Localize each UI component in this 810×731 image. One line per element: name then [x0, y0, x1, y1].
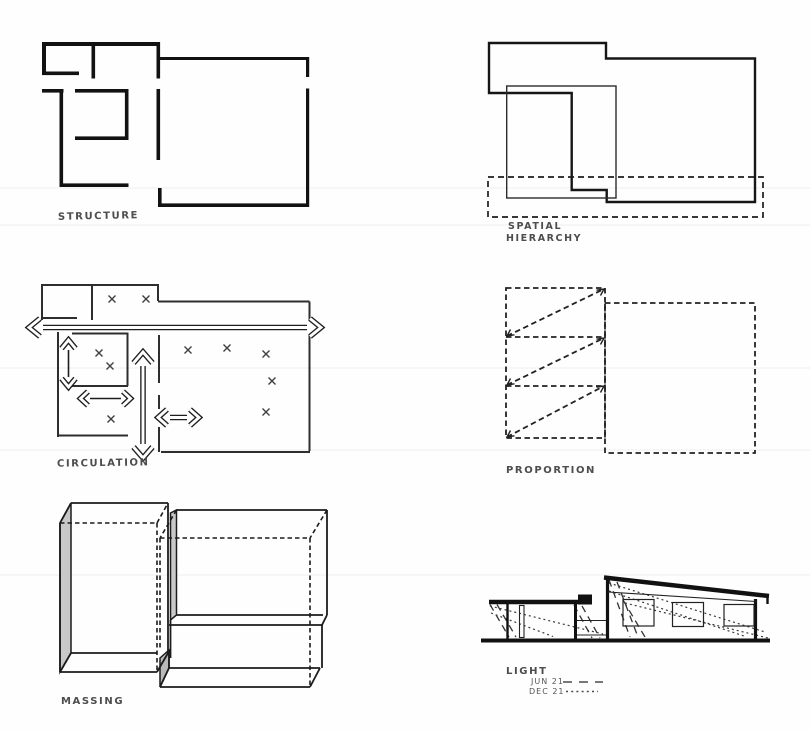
proportion-diagonal-arrowheads [507, 289, 604, 437]
drawing-sheet: STRUCTURE SPATIAL HIERARCHY CIRCULATION … [0, 0, 810, 731]
massing-hidden-edges [60, 503, 327, 687]
jun21-legend-label: JUN 21 [531, 677, 564, 686]
spatial-hierarchy-label-line1: SPATIAL [508, 221, 562, 232]
sloped-roof [604, 578, 769, 597]
scan-artifact-line [0, 574, 810, 576]
massing-drawing [60, 503, 327, 687]
circulation-arrows [29, 319, 321, 459]
clerestory-block [578, 595, 592, 605]
dec21-sun-rays [490, 583, 768, 638]
scan-artifact-line [0, 187, 810, 189]
diagram-canvas [0, 0, 810, 731]
proportion-label: PROPORTION [506, 465, 596, 476]
massing-shaded-face [171, 510, 177, 620]
spatial-hierarchy-drawing [488, 43, 763, 217]
spatial-hierarchy-label-line2: HIERARCHY [506, 233, 582, 244]
massing-label: MASSING [61, 696, 124, 707]
scan-artifact-line [0, 367, 810, 369]
light-label: LIGHT [506, 666, 548, 677]
section-windows [623, 600, 754, 627]
jun21-sun-rays [490, 580, 645, 638]
structure-label: STRUCTURE [58, 210, 139, 223]
circulation-column-marks [96, 296, 276, 423]
massing-shaded-face [160, 650, 169, 687]
scan-artifact-line [0, 449, 810, 451]
dec21-legend-label: DEC 21 [529, 687, 565, 696]
structure-plan-drawing [42, 42, 309, 207]
circulation-label: CIRCULATION [57, 457, 150, 469]
scan-artifact-line [0, 224, 810, 226]
massing-shaded-face [60, 503, 71, 672]
proportion-drawing [506, 288, 755, 453]
